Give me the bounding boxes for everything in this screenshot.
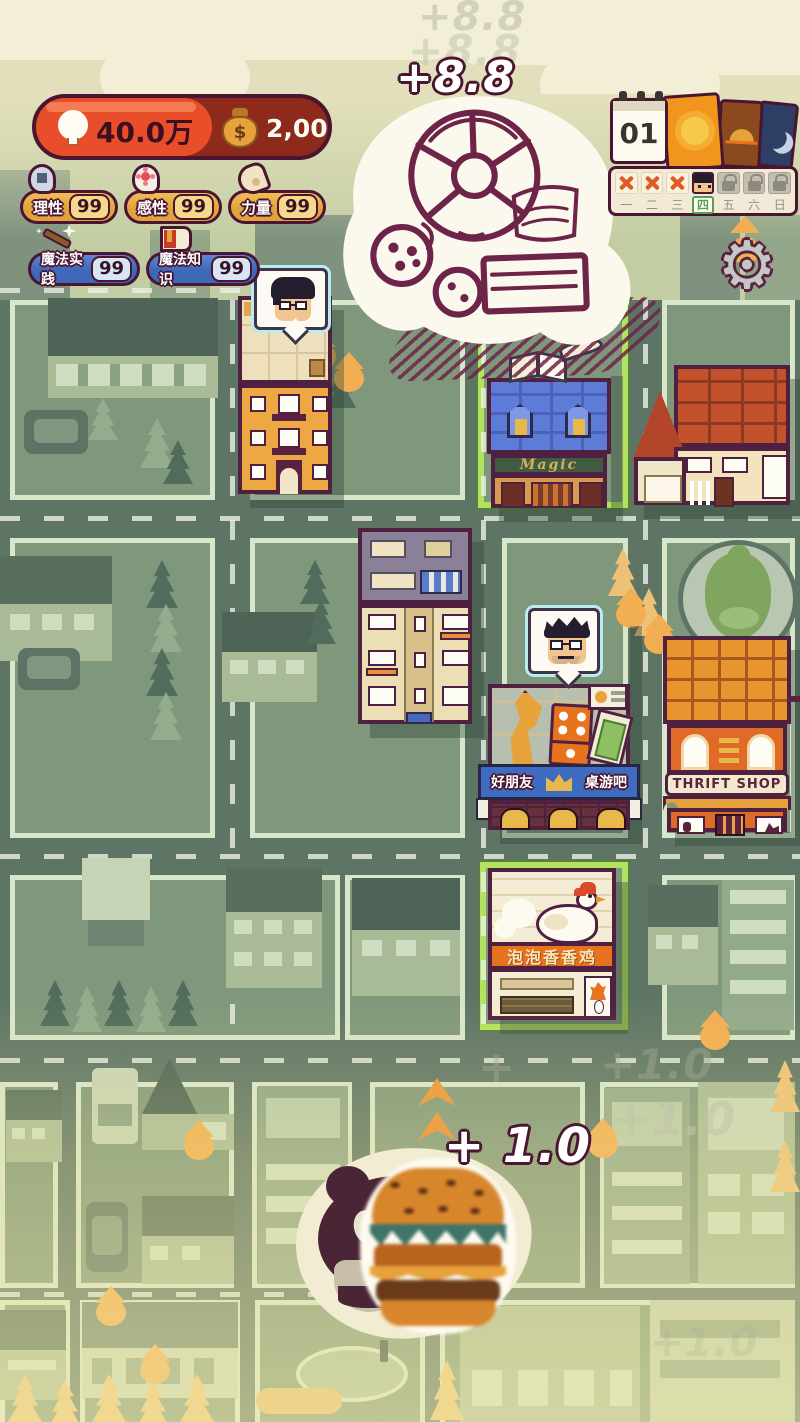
stat-label: 理性 (33, 197, 63, 218)
traffic-light (380, 1340, 388, 1362)
apartment-muted (722, 880, 794, 1030)
head-flower-icon (132, 164, 164, 198)
day-slot-lock (743, 172, 766, 194)
currency-bar[interactable]: 40.0万 $ 2,000 (32, 94, 332, 160)
calendar-day-number: 01 (613, 117, 665, 150)
money-cards (586, 708, 634, 767)
insight-gain-value: +8.8 (396, 52, 515, 103)
stat-value: 99 (173, 194, 214, 220)
game-box (588, 684, 628, 710)
dormer-window (507, 404, 533, 438)
road-dashes (481, 300, 486, 1040)
chess-knight-piece (500, 690, 548, 768)
magic-wand-icon (36, 224, 76, 258)
day-slot-x (641, 172, 664, 194)
stat-value: 99 (277, 194, 318, 220)
spell-book-icon (156, 222, 196, 258)
car (18, 648, 80, 690)
bottom-gain-ghost: +1.0 (600, 1040, 714, 1089)
car (24, 410, 88, 454)
flaming-chicken-poster (584, 976, 612, 1018)
settings-button[interactable]: ⚙ (712, 228, 782, 302)
calendar-date[interactable]: 01 (610, 98, 668, 164)
warehouse (48, 298, 218, 398)
head-gear-icon (28, 164, 60, 198)
house (648, 885, 718, 985)
stat-label: 感性 (137, 197, 167, 218)
cafe-banner-right: 桌游吧 (585, 772, 627, 792)
phase-card-sun[interactable] (661, 92, 724, 172)
apartment-building-2[interactable] (358, 528, 472, 724)
van (92, 1068, 138, 1144)
day-slot-x (666, 172, 689, 194)
bottom-gain-value: + 1.0 (444, 1118, 591, 1174)
arm-muscle-icon (236, 162, 272, 198)
stat-value: 99 (91, 256, 132, 282)
day-slot-lock (717, 172, 740, 194)
gain-plus-ghost: + (478, 1042, 516, 1093)
day-slot-lock (768, 172, 791, 194)
car (86, 1202, 128, 1272)
weekday-label: 五 (717, 196, 740, 214)
house (142, 1196, 234, 1284)
insight-value: 40.0万 (96, 111, 193, 151)
stat-value: 99 (69, 194, 110, 220)
weekday-label-active: 四 (692, 196, 715, 214)
chicken-shop[interactable]: 泡泡香香鸡 (488, 868, 616, 1020)
resource-drop[interactable] (184, 1120, 214, 1160)
chicken-shop-sign: 泡泡香香鸡 (507, 944, 597, 968)
money-value: 2,000 (266, 114, 332, 143)
house (0, 556, 112, 661)
money-bag-icon: $ (222, 108, 258, 148)
moon-icon (764, 126, 788, 150)
apartment-building[interactable] (238, 296, 332, 494)
weekday-label: 三 (666, 196, 689, 214)
chicken-mascot (536, 890, 606, 946)
box-truck (82, 858, 150, 946)
resident-speech-bubble[interactable] (254, 268, 328, 330)
day-slot-x (615, 172, 638, 194)
house (6, 1090, 62, 1162)
sun-icon (680, 116, 710, 146)
crown-icon (546, 773, 572, 791)
house (226, 868, 322, 988)
gear-icon: ⚙ (717, 227, 776, 304)
resource-drop[interactable] (140, 1344, 170, 1384)
week-panel[interactable]: 一 二 三 四 五 六 日 (608, 166, 798, 216)
game-screen: Magic (0, 0, 800, 1422)
burger (360, 1158, 516, 1334)
lightbulb-icon (58, 110, 88, 146)
cafe-owner-avatar (544, 616, 590, 668)
bottom-gain-ghost: +1.0 (650, 1320, 758, 1366)
weekday-label: 二 (641, 196, 664, 214)
hanging-clock (787, 696, 800, 766)
weekday-label: 六 (743, 196, 766, 214)
board-game-cafe[interactable]: 好朋友 桌游吧 (488, 612, 630, 830)
cinema-blueprint-drawing (358, 90, 610, 344)
bottom-gain-ghost: +1.0 (612, 1092, 736, 1146)
cafe-owner-speech-bubble[interactable] (528, 608, 600, 674)
magic-shop[interactable]: Magic (487, 362, 611, 508)
resource-drop[interactable] (96, 1286, 126, 1326)
house (0, 1310, 66, 1400)
construction-sketch[interactable] (344, 83, 625, 354)
resource-drop[interactable] (334, 352, 364, 392)
dormer-window (565, 404, 591, 438)
house (222, 612, 317, 702)
cafe-banner: 好朋友 桌游吧 (478, 764, 640, 800)
bush (256, 1388, 342, 1414)
day-slot-avatar (692, 172, 715, 194)
stat-label: 力量 (241, 197, 271, 218)
weekday-label: 一 (615, 196, 638, 214)
stat-value: 99 (211, 256, 252, 282)
burger-sticker[interactable] (296, 1148, 532, 1338)
thrift-shop-sign: THRIFT SHOP (665, 772, 789, 796)
magic-shop-sign: Magic (520, 457, 578, 473)
weekday-label: 日 (768, 196, 791, 214)
house (352, 878, 460, 996)
road-dashes (0, 516, 800, 521)
thrift-shop[interactable]: THRIFT SHOP (663, 636, 791, 832)
steam-puff (494, 918, 516, 938)
red-house[interactable] (632, 365, 790, 505)
cafe-banner-left: 好朋友 (491, 772, 533, 792)
resident-avatar (271, 277, 315, 323)
